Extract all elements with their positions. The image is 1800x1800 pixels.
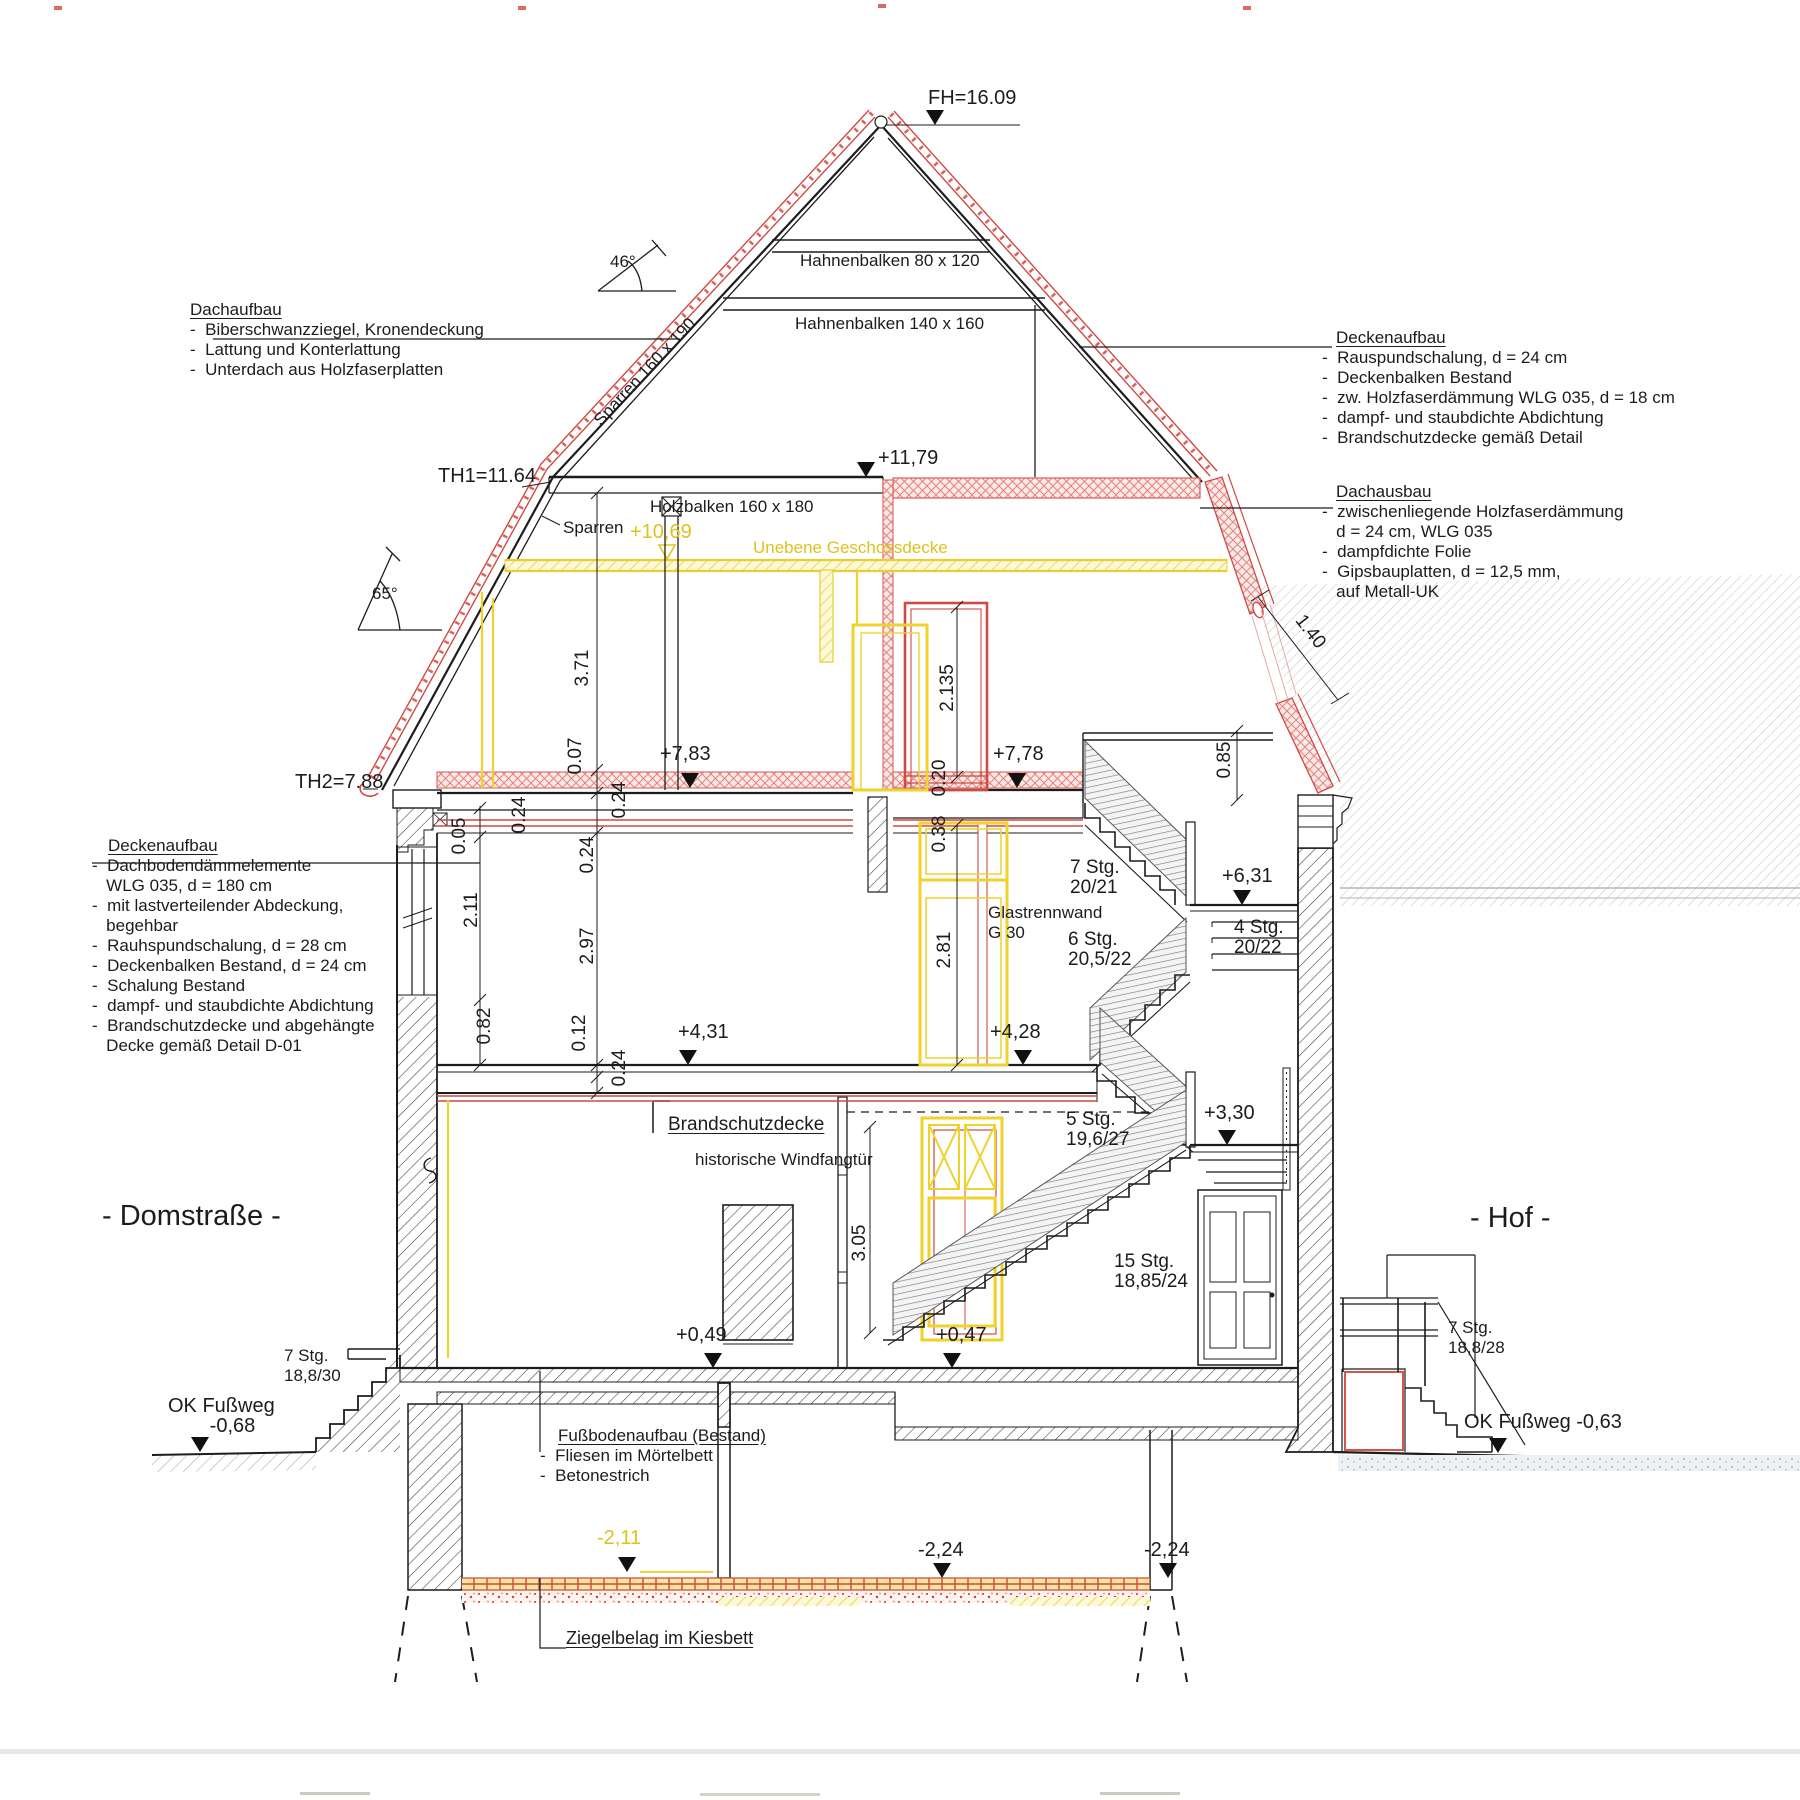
block-fussbodenaufbau-item: - Betonestrich [540, 1466, 766, 1486]
level-m2-11: -2,11 [597, 1528, 641, 1548]
block-deckenaufbau-right-item: - dampf- und staubdichte Abdichtung [1322, 408, 1675, 428]
label-windfangtuer: historische Windfangtür [695, 1150, 873, 1170]
block-dachaufbau-title: Dachaufbau [190, 300, 484, 320]
dim-0-82: 0.82 [475, 1008, 495, 1045]
dim-2-135: 2.135 [938, 664, 958, 712]
label-angle-46: 46° [610, 252, 636, 272]
scan-marks [54, 4, 1251, 10]
dim-0-07: 0.07 [566, 738, 586, 775]
dim-0-12: 0.12 [570, 1015, 590, 1052]
stair-4stg-20-22: 4 Stg. 20/22 [1234, 918, 1284, 958]
doors [1198, 1190, 1282, 1365]
dim-0-24-d: 0.24 [610, 1050, 630, 1087]
block-dachausbau-item: auf Metall-UK [1322, 582, 1623, 602]
block-deckenaufbau-left-item: - Brandschutzdecke und abgehängte [92, 1016, 375, 1036]
label-hof: - Hof - [1470, 1208, 1551, 1228]
block-dachaufbau: Dachaufbau - Biberschwanzziegel, Kronend… [190, 300, 484, 380]
block-dachaufbau-item: - Biberschwanzziegel, Kronendeckung [190, 320, 484, 340]
block-deckenaufbau-left-item: - Dachbodendämmelemente [92, 856, 375, 876]
label-domstrasse: - Domstraße - [102, 1206, 281, 1226]
block-fussbodenaufbau-item: - Fliesen im Mörtelbett [540, 1446, 766, 1466]
dim-0-24-b: 0.24 [510, 797, 530, 834]
dim-0-85: 0.85 [1215, 742, 1235, 779]
label-angle-65: 65° [372, 584, 398, 604]
label-th1: TH1=11.64 [438, 466, 536, 486]
block-fussbodenaufbau: Fußbodenaufbau (Bestand) - Fliesen im Mö… [540, 1426, 766, 1486]
block-deckenaufbau-left-item: begehbar [92, 916, 375, 936]
stair-15stg-1885-24: 15 Stg. 18,85/24 [1114, 1252, 1188, 1292]
block-dachausbau-item: d = 24 cm, WLG 035 [1322, 522, 1623, 542]
dim-0-24-a: 0.24 [610, 782, 630, 819]
stair-7stg-188-30: 7 Stg. 18,8/30 [284, 1346, 341, 1386]
label-glastrennwand: Glastrennwand G 30 [988, 903, 1102, 943]
level-3-30: +3,30 [1204, 1103, 1255, 1123]
level-m2-24-b: -2,24 [1144, 1540, 1190, 1560]
block-deckenaufbau-right-title: Deckenaufbau [1322, 328, 1675, 348]
dim-2-81: 2.81 [935, 932, 955, 969]
block-dachausbau-item: - dampfdichte Folie [1322, 542, 1623, 562]
level-7-78: +7,78 [993, 744, 1044, 764]
block-dachaufbau-item: - Unterdach aus Holzfaserplatten [190, 360, 484, 380]
block-deckenaufbau-right-item: - Deckenbalken Bestand [1322, 368, 1675, 388]
label-ziegelbelag: Ziegelbelag im Kiesbett [566, 1628, 753, 1648]
scan-artifacts [0, 1749, 1800, 1796]
dim-0-38: 0.38 [930, 816, 950, 853]
block-dachausbau-title: Dachausbau [1322, 482, 1623, 502]
dim-2-97: 2.97 [578, 928, 598, 965]
label-hahnenbalken-1: Hahnenbalken 80 x 120 [800, 251, 980, 271]
block-deckenaufbau-left-item: - dampf- und staubdichte Abdichtung [92, 996, 375, 1016]
stair-7stg-20-21: 7 Stg. 20/21 [1070, 858, 1120, 898]
label-unebene-geschossdecke: Unebene Geschossdecke [753, 538, 948, 558]
dim-3-05: 3.05 [850, 1225, 870, 1262]
block-deckenaufbau-left-title: Deckenaufbau [92, 836, 375, 856]
block-dachausbau-item: - Gipsbauplatten, d = 12,5 mm, [1322, 562, 1623, 582]
block-deckenaufbau-left: Deckenaufbau - Dachbodendämmelemente WLG… [92, 836, 375, 1056]
dim-0-20: 0.20 [930, 760, 950, 797]
level-11-79: +11,79 [878, 448, 938, 468]
dim-3-71: 3.71 [573, 650, 593, 687]
block-deckenaufbau-right-item: - Rauspundschalung, d = 24 cm [1322, 348, 1675, 368]
block-fussbodenaufbau-title: Fußbodenaufbau (Bestand) [540, 1426, 766, 1446]
label-th2: TH2=7.88 [295, 772, 383, 792]
label-ok-fussweg-right: OK Fußweg -0,63 [1464, 1412, 1622, 1432]
block-deckenaufbau-right-item: - Brandschutzdecke gemäß Detail [1322, 428, 1675, 448]
section-drawing: FH=16.09 Hahnenbalken 80 x 120 Hahnenbal… [0, 0, 1800, 1800]
block-deckenaufbau-right: Deckenaufbau - Rauspundschalung, d = 24 … [1322, 328, 1675, 448]
dim-2-11: 2.11 [462, 892, 482, 928]
block-deckenaufbau-left-item: WLG 035, d = 180 cm [92, 876, 375, 896]
level-0-49: +0,49 [676, 1325, 727, 1345]
block-deckenaufbau-left-item: - Deckenbalken Bestand, d = 24 cm [92, 956, 375, 976]
stair-7stg-188-28: 7 Stg. 18,8/28 [1448, 1318, 1505, 1358]
label-sparren: Sparren [563, 518, 623, 538]
label-ok-fussweg-left: OK Fußweg -0,68 [168, 1396, 275, 1436]
stair-5stg-196-27: 5 Stg. 19,6/27 [1066, 1110, 1129, 1150]
level-10-69: +10,69 [630, 522, 692, 542]
dim-0-24-c: 0.24 [578, 837, 598, 874]
block-dachaufbau-item: - Lattung und Konterlattung [190, 340, 484, 360]
block-deckenaufbau-left-item: Decke gemäß Detail D-01 [92, 1036, 375, 1056]
block-deckenaufbau-right-item: - zw. Holzfaserdämmung WLG 035, d = 18 c… [1322, 388, 1675, 408]
level-6-31: +6,31 [1222, 866, 1273, 886]
dim-0-05: 0.05 [450, 818, 470, 855]
label-holzbalken: Holzbalken 160 x 180 [650, 497, 814, 517]
block-deckenaufbau-left-item: - mit lastverteilender Abdeckung, [92, 896, 375, 916]
label-hahnenbalken-2: Hahnenbalken 140 x 160 [795, 314, 984, 334]
block-deckenaufbau-left-item: - Rauhspundschalung, d = 28 cm [92, 936, 375, 956]
level-0-47: +0,47 [936, 1325, 987, 1345]
label-brandschutzdecke: Brandschutzdecke [668, 1115, 824, 1135]
level-4-28: +4,28 [990, 1022, 1041, 1042]
level-7-83: +7,83 [660, 744, 711, 764]
label-fh: FH=16.09 [928, 88, 1016, 108]
block-dachausbau: Dachausbau - zwischenliegende Holzfaserd… [1322, 482, 1623, 602]
level-4-31: +4,31 [678, 1022, 729, 1042]
block-dachausbau-item: - zwischenliegende Holzfaserdämmung [1322, 502, 1623, 522]
level-m2-24-a: -2,24 [918, 1540, 964, 1560]
block-deckenaufbau-left-item: - Schalung Bestand [92, 976, 375, 996]
